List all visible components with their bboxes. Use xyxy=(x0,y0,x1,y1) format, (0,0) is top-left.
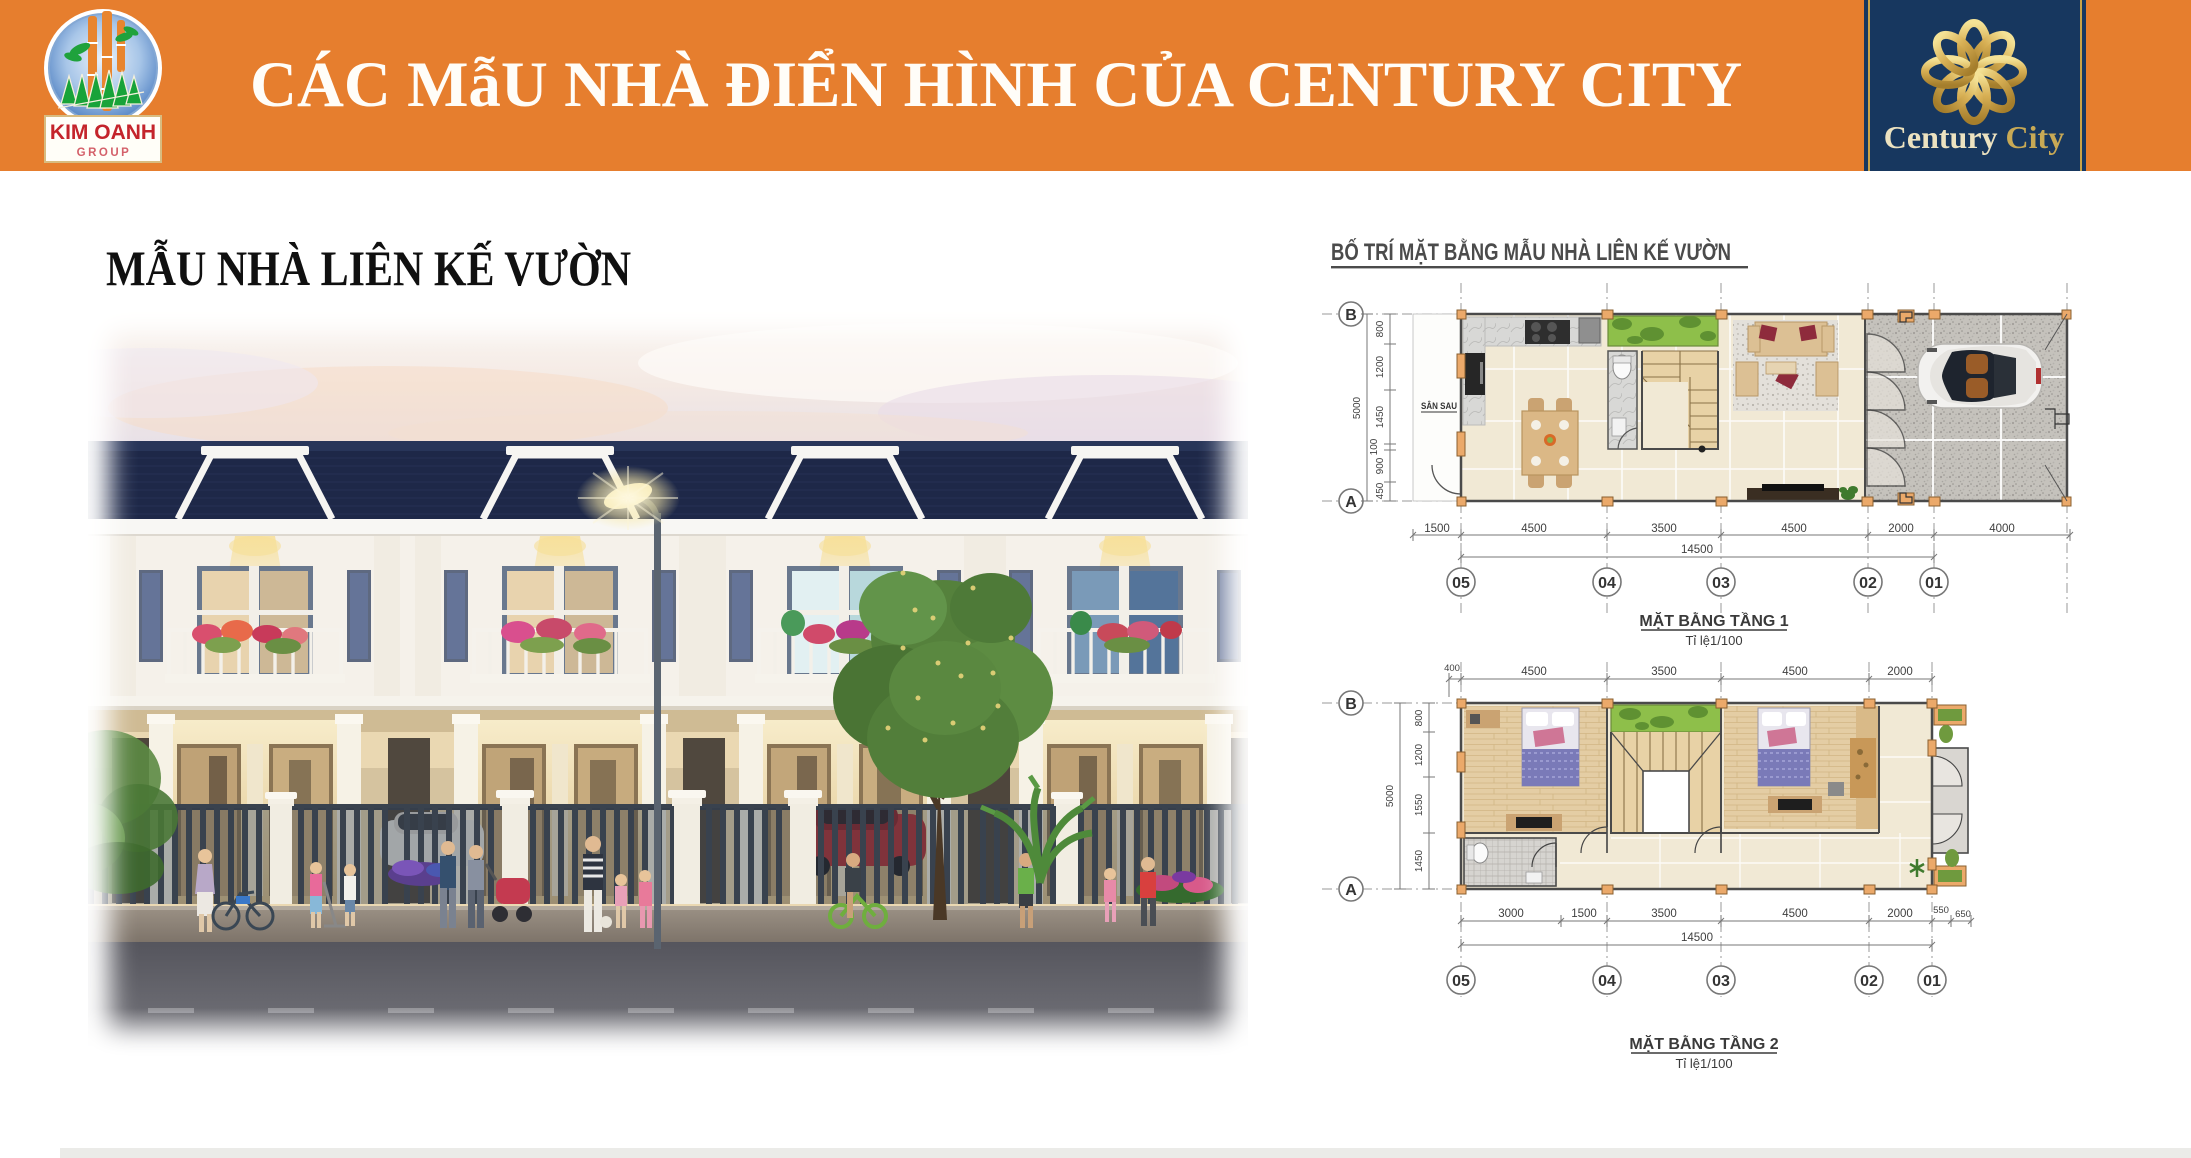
svg-text:2000: 2000 xyxy=(1887,908,1913,920)
svg-text:4500: 4500 xyxy=(1781,523,1807,535)
svg-text:3000: 3000 xyxy=(1498,908,1524,920)
svg-text:4500: 4500 xyxy=(1782,666,1808,678)
svg-text:A: A xyxy=(1345,882,1357,899)
svg-text:05: 05 xyxy=(1452,575,1470,592)
svg-text:1500: 1500 xyxy=(1571,908,1597,920)
svg-text:800: 800 xyxy=(1375,320,1386,337)
svg-text:400: 400 xyxy=(1444,663,1460,674)
svg-text:1200: 1200 xyxy=(1375,355,1386,378)
svg-text:GROUP: GROUP xyxy=(77,147,132,159)
svg-text:Century City: Century City xyxy=(1884,119,2064,155)
svg-text:B: B xyxy=(1345,696,1357,713)
svg-text:3500: 3500 xyxy=(1651,523,1677,535)
svg-text:1450: 1450 xyxy=(1414,849,1425,872)
svg-text:MẶT BẰNG TẦNG 1: MẶT BẰNG TẦNG 1 xyxy=(1639,611,1788,630)
svg-text:1550: 1550 xyxy=(1414,793,1425,816)
svg-text:4500: 4500 xyxy=(1782,908,1808,920)
svg-text:1450: 1450 xyxy=(1375,405,1386,428)
svg-text:1200: 1200 xyxy=(1414,743,1425,766)
svg-text:04: 04 xyxy=(1598,973,1616,990)
svg-text:03: 03 xyxy=(1712,575,1730,592)
svg-text:2000: 2000 xyxy=(1888,523,1914,535)
svg-text:03: 03 xyxy=(1712,973,1730,990)
svg-text:02: 02 xyxy=(1859,575,1877,592)
svg-text:14500: 14500 xyxy=(1681,932,1713,944)
svg-text:BỐ TRÍ MẶT BẰNG MẪU NHÀ LIÊN K: BỐ TRÍ MẶT BẰNG MẪU NHÀ LIÊN KẾ VƯỜN xyxy=(1331,237,1731,266)
svg-text:3500: 3500 xyxy=(1651,908,1677,920)
svg-text:01: 01 xyxy=(1923,973,1941,990)
svg-text:900: 900 xyxy=(1375,457,1386,474)
svg-text:14500: 14500 xyxy=(1681,544,1713,556)
svg-text:05: 05 xyxy=(1452,973,1470,990)
svg-text:02: 02 xyxy=(1860,973,1878,990)
svg-text:Tỉ lệ1/100: Tỉ lệ1/100 xyxy=(1675,1056,1732,1071)
svg-text:Tỉ lệ1/100: Tỉ lệ1/100 xyxy=(1685,633,1742,648)
svg-text:01: 01 xyxy=(1925,575,1943,592)
svg-text:4500: 4500 xyxy=(1521,523,1547,535)
svg-text:KIM OANH: KIM OANH xyxy=(50,121,156,144)
svg-text:5000: 5000 xyxy=(1385,784,1396,807)
svg-text:2000: 2000 xyxy=(1887,666,1913,678)
svg-text:3500: 3500 xyxy=(1651,666,1677,678)
svg-text:SÂN SAU: SÂN SAU xyxy=(1421,400,1457,412)
svg-text:4000: 4000 xyxy=(1989,523,2015,535)
svg-text:4500: 4500 xyxy=(1521,666,1547,678)
svg-text:B: B xyxy=(1345,307,1357,324)
svg-text:100: 100 xyxy=(1369,438,1380,455)
svg-text:450: 450 xyxy=(1375,482,1386,499)
svg-text:5000: 5000 xyxy=(1352,396,1363,419)
svg-text:A: A xyxy=(1345,494,1357,511)
svg-text:04: 04 xyxy=(1598,575,1616,592)
svg-text:650: 650 xyxy=(1955,909,1971,920)
svg-text:800: 800 xyxy=(1414,709,1425,726)
svg-text:550: 550 xyxy=(1933,905,1949,916)
svg-text:1500: 1500 xyxy=(1424,523,1450,535)
svg-text:MẶT BẰNG TẦNG 2: MẶT BẰNG TẦNG 2 xyxy=(1629,1034,1778,1053)
